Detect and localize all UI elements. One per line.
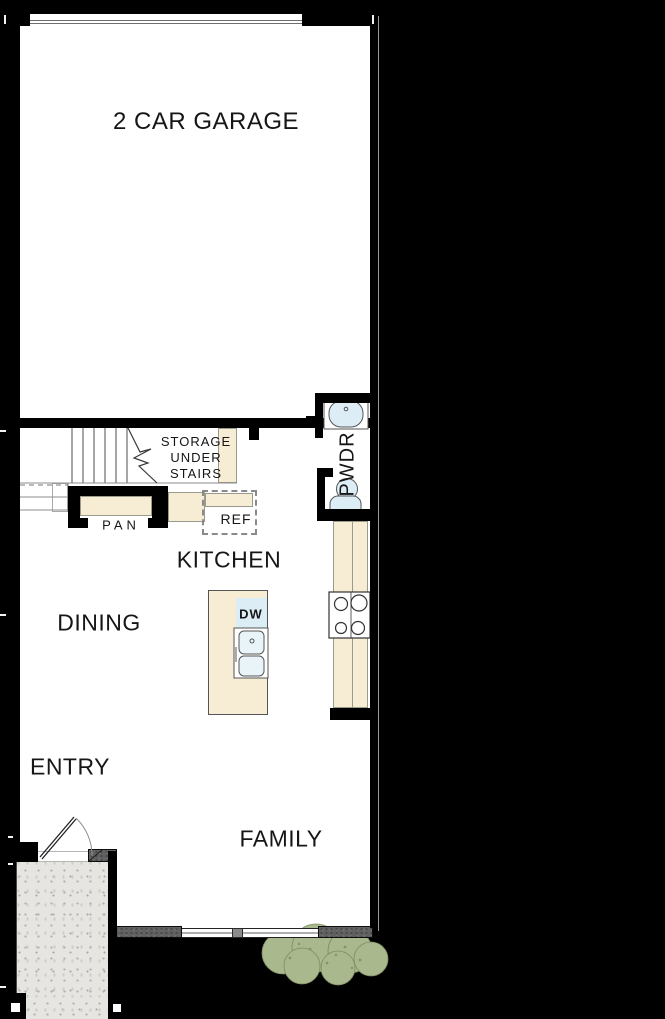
- wall-counter-end: [330, 708, 372, 720]
- annotation-dishwasher: DW: [239, 607, 263, 622]
- wall-powder-top: [315, 393, 375, 403]
- room-label-dining: DINING: [57, 610, 141, 637]
- wall-porch-right: [108, 851, 117, 938]
- dim-tick: [0, 614, 6, 616]
- annotation-pantry: PAN: [102, 518, 140, 533]
- porch-slab: [16, 862, 108, 995]
- wall-pantry-right-foot: [148, 518, 168, 528]
- wall-top-right: [302, 14, 376, 26]
- dim-tick: [372, 15, 374, 24]
- family-window-right: [243, 928, 318, 938]
- porch-post-right: [108, 993, 128, 1019]
- porch-post-left: [2, 993, 26, 1019]
- annotation-refrigerator: REF: [221, 511, 252, 527]
- room-label-garage: 2 CAR GARAGE: [113, 108, 299, 136]
- wall-garage-south: [14, 418, 265, 428]
- window-mullion: [232, 928, 243, 938]
- porch-step: [25, 995, 108, 1019]
- entry-threshold: [38, 851, 90, 862]
- room-label-family: FAMILY: [239, 826, 322, 853]
- wall-left: [14, 14, 20, 851]
- right-wall-edge-line: [378, 16, 379, 931]
- dim-tick: [0, 986, 6, 988]
- dim-tick: [4, 15, 6, 24]
- wall-pantry-left-foot: [68, 518, 88, 528]
- south-wall-segment-right: [318, 926, 373, 938]
- wall-powder-bottom: [317, 509, 373, 521]
- garage-room-area: [20, 26, 370, 418]
- pantry-shelf: [80, 496, 152, 516]
- wall-right: [370, 14, 378, 928]
- wall-powder-corner: [306, 416, 323, 428]
- dim-tick: [8, 836, 13, 838]
- floor-plan: 2 CAR GARAGE KITCHEN DINING ENTRY FAMILY…: [0, 0, 665, 1019]
- south-wall-segment-left: [108, 926, 182, 938]
- wall-powder-door-jamb: [317, 468, 333, 477]
- room-label-powder: PWDR: [337, 431, 360, 496]
- room-label-kitchen: KITCHEN: [177, 547, 281, 574]
- wall-garage-stub: [249, 428, 259, 440]
- family-room-area: [117, 851, 370, 928]
- room-label-entry: ENTRY: [30, 754, 110, 781]
- counter-by-fridge: [168, 492, 205, 522]
- stair-landing: [52, 483, 68, 512]
- dim-tick: [8, 863, 13, 865]
- kitchen-counter: [333, 521, 368, 708]
- dim-tick: [0, 430, 6, 432]
- wall-entry-corner: [14, 842, 38, 862]
- family-window-left: [182, 928, 232, 938]
- annotation-storage: STORAGE UNDER STAIRS: [161, 434, 231, 482]
- garage-door: [30, 14, 302, 26]
